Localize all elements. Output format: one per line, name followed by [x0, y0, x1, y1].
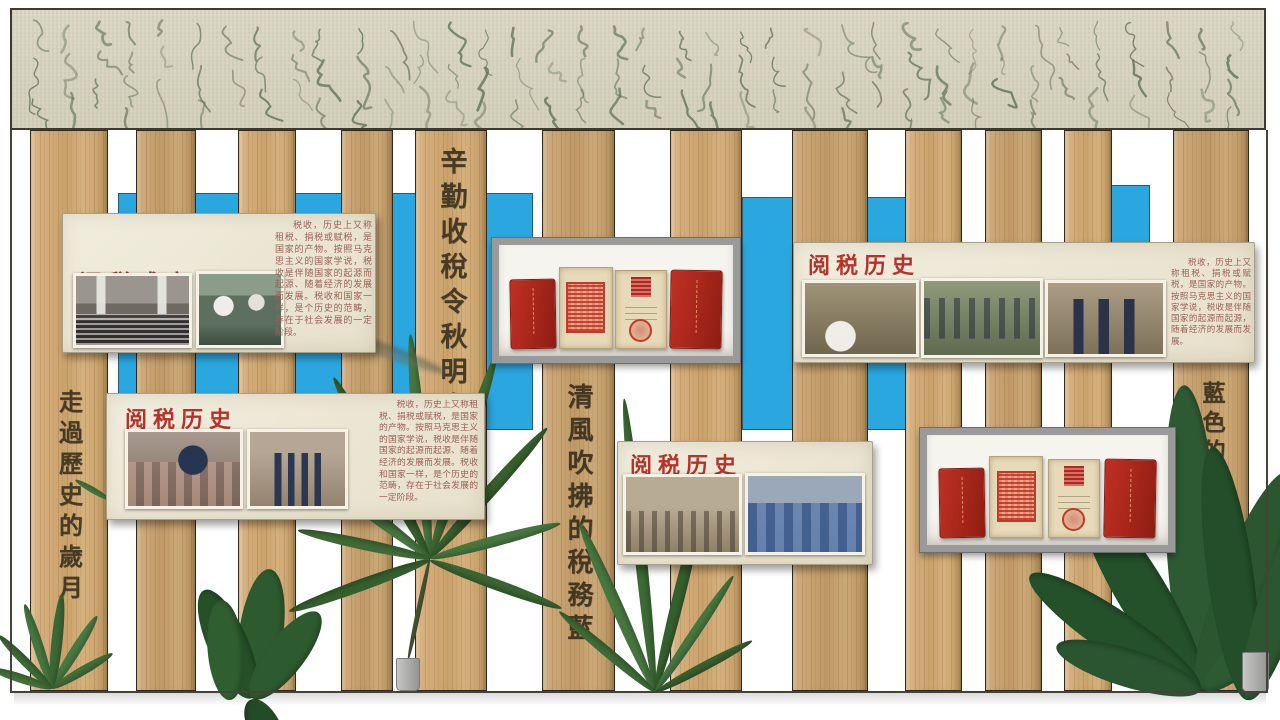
plant-pot: [396, 658, 420, 691]
certificate-left-page: [989, 456, 1043, 538]
red-booklet: [509, 279, 556, 350]
red-booklet: [939, 468, 986, 539]
photo-bicycles-vintage: [623, 474, 742, 555]
photo-office-scene-3: [1045, 280, 1166, 357]
red-stamp-block: [566, 282, 606, 332]
floor-shadow: [14, 693, 1266, 706]
wood-plank: 清風吹拂的稅務藍: [542, 130, 615, 691]
calligraphy-banner: [10, 8, 1266, 130]
display-case-lower: [920, 428, 1175, 552]
panel-history-middle: 阅税历史: [617, 441, 873, 565]
wall-border-bottom: [10, 691, 1268, 693]
red-stamp-block: [997, 471, 1037, 521]
photo-bw-group: [73, 273, 192, 348]
panel-founding: 阅税成立 税收，历史上又称租税、捐税或赋税，是国家的产物。按照马克思主义的国家学…: [62, 213, 376, 353]
certificate-text-lines: [625, 303, 657, 320]
panel-history-left: 阅税历史 税收，历史上又称租税、捐税或赋税，是国家的产物。按照马克思主义的国家学…: [106, 393, 485, 520]
wood-plank: [1064, 130, 1112, 691]
photo-officers-marching: [247, 429, 348, 509]
panel-history-right: 阅税历史 税收，历史上又称租税、捐税或赋税，是国家的产物。按照马克思主义的国家学…: [793, 242, 1255, 363]
panel-body-text: 税收，历史上又称租税、捐税或赋税，是国家的产物。按照马克思主义的国家学说，税收是…: [1171, 257, 1251, 360]
wood-plank: 藍色的衣裝包裹着紅心: [1173, 130, 1249, 691]
certificate-text-lines: [1058, 492, 1090, 509]
photo-leaflet-crowd: [125, 429, 243, 509]
red-booklet: [670, 270, 723, 350]
wall-border-right: [1266, 130, 1268, 693]
wood-plank: [792, 130, 868, 691]
certificate-left-page: [559, 267, 613, 349]
photo-blue-uniform-group: [745, 473, 865, 555]
wood-plank: [670, 130, 742, 691]
cursive-calligraphy-strokes: [12, 10, 1264, 128]
certificate-right-page: [615, 270, 667, 349]
tax-culture-exhibition-wall: 走過歷史的歲月 辛勤收稅令秋明春 清風吹拂的稅務藍 藍色的衣裝包裹着紅心 阅税成…: [0, 0, 1280, 720]
photo-office-scene-1: [802, 280, 919, 357]
round-seal: [1062, 508, 1085, 531]
display-case-upper: [492, 238, 740, 363]
panel-body-text: 税收，历史上又称租税、捐税或赋税，是国家的产物。按照马克思主义的国家学说，税收是…: [379, 399, 478, 518]
wood-plank: [905, 130, 962, 691]
panel-title: 阅税历史: [808, 248, 920, 280]
square-seal: [631, 277, 651, 297]
photo-officers-outdoor: [196, 271, 284, 348]
red-booklet: [1103, 459, 1156, 539]
panel-body-text: 税收，历史上又称租税、捐税或赋税，是国家的产物。按照马克思主义的国家学说，税收是…: [275, 220, 372, 352]
plant-pot: [1242, 652, 1269, 692]
vertical-sign-right: 藍色的衣裝包裹着紅心: [1194, 131, 1228, 690]
vertical-sign-center: 清風吹拂的稅務藍: [560, 131, 597, 690]
round-seal: [629, 319, 652, 342]
photo-office-scene-2: [921, 278, 1043, 358]
square-seal: [1064, 466, 1084, 486]
certificate-right-page: [1048, 459, 1100, 538]
wall-border-left: [10, 130, 12, 693]
wood-plank: [985, 130, 1042, 691]
